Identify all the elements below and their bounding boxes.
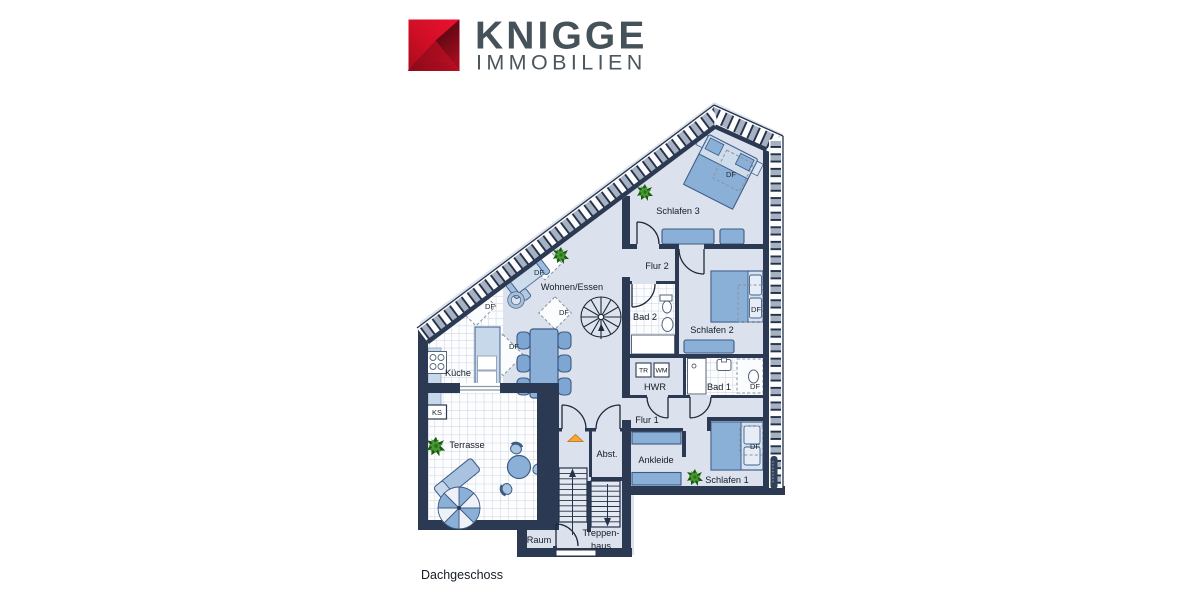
svg-text:Terrasse: Terrasse xyxy=(449,440,484,450)
svg-text:WM: WM xyxy=(655,368,667,375)
svg-text:Flur 1: Flur 1 xyxy=(635,415,659,425)
svg-text:Bad 1: Bad 1 xyxy=(707,382,731,392)
svg-text:KS: KS xyxy=(432,408,442,417)
svg-text:Küche: Küche xyxy=(445,368,471,378)
svg-text:Bad 2: Bad 2 xyxy=(633,312,657,322)
svg-text:haus: haus xyxy=(591,541,611,551)
svg-text:Treppen-: Treppen- xyxy=(583,528,620,538)
svg-text:IMMOBILIEN: IMMOBILIEN xyxy=(476,51,647,75)
svg-text:Raum: Raum xyxy=(527,535,552,545)
svg-text:Abst.: Abst. xyxy=(597,449,618,459)
svg-text:DF: DF xyxy=(559,308,569,317)
svg-text:HWR: HWR xyxy=(644,382,666,392)
svg-text:Wohnen/Essen: Wohnen/Essen xyxy=(541,282,603,292)
svg-text:Schlafen 3: Schlafen 3 xyxy=(656,206,699,216)
svg-text:DF: DF xyxy=(751,305,761,314)
svg-text:Dachgeschoss: Dachgeschoss xyxy=(421,568,503,582)
svg-text:DF: DF xyxy=(534,268,544,277)
svg-text:DF: DF xyxy=(750,382,760,391)
svg-text:DF: DF xyxy=(750,442,760,451)
svg-text:Flur 2: Flur 2 xyxy=(645,261,669,271)
svg-text:DF: DF xyxy=(509,342,519,351)
svg-text:TR: TR xyxy=(639,368,648,375)
svg-text:DF: DF xyxy=(726,170,736,179)
svg-text:Ankleide: Ankleide xyxy=(638,455,673,465)
svg-text:DF: DF xyxy=(485,302,495,311)
svg-text:Schlafen 2: Schlafen 2 xyxy=(690,325,733,335)
svg-text:Schlafen 1: Schlafen 1 xyxy=(705,475,748,485)
